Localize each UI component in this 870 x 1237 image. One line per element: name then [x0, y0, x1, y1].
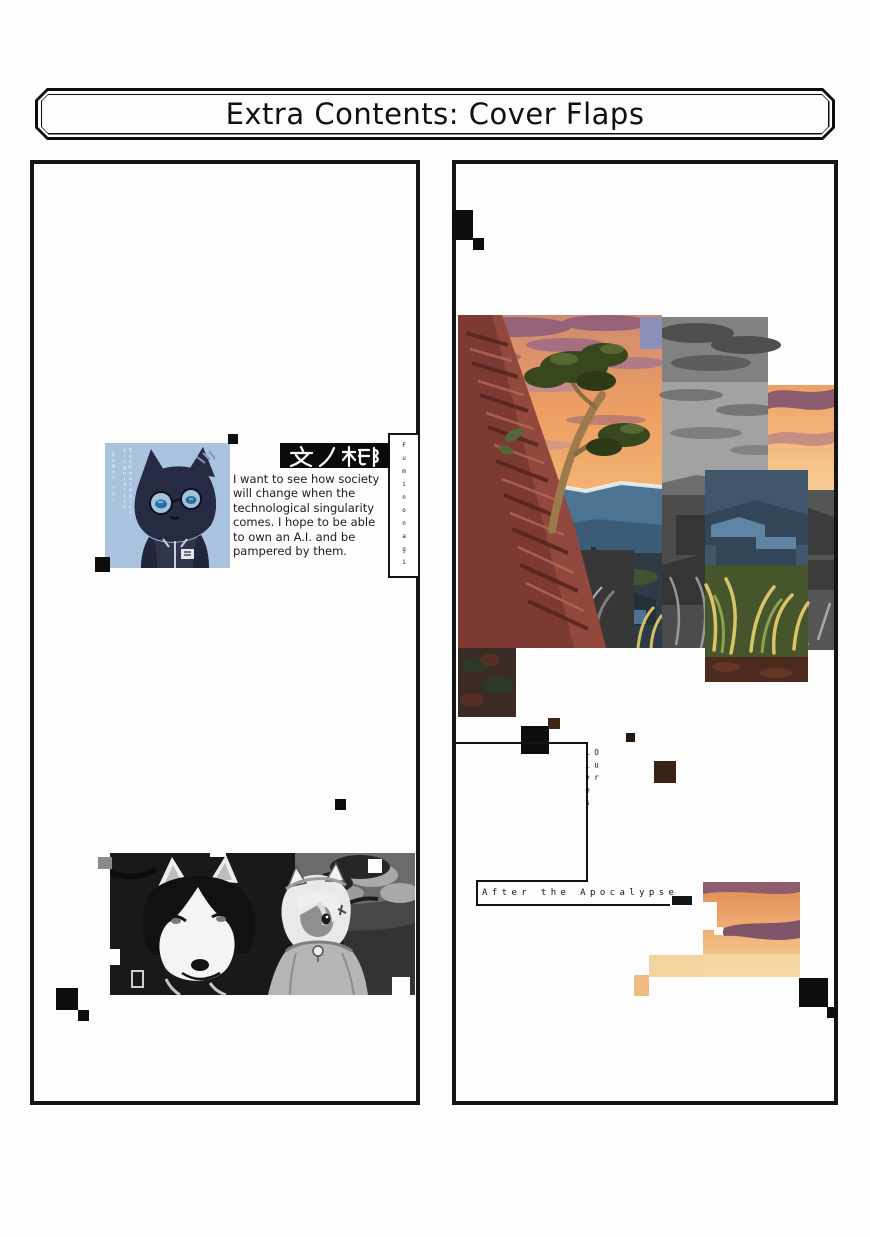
- landscape-artwork: [456, 315, 834, 717]
- portrait-caption-line1: Eager for: [110, 453, 116, 563]
- title-banner: Extra Contents: Cover Flaps: [35, 88, 835, 140]
- pixel-square: [799, 978, 828, 1007]
- pixel-edge-notch: [392, 977, 410, 995]
- right-cover-flap-panel: Our Lives After the Apocalypse: [452, 160, 838, 1105]
- pixel-square: [335, 799, 346, 810]
- author-portrait-image: Eager for Technological Singularity: [105, 443, 230, 568]
- connector-line: [476, 880, 478, 905]
- pixel-square: [521, 726, 549, 754]
- pixel-square: [228, 434, 238, 444]
- pixel-square: [548, 718, 560, 729]
- dog-and-girl-illustration: [110, 853, 415, 995]
- left-cover-flap-panel: Eager for Technological Singularity Fumi…: [30, 160, 420, 1105]
- author-quote: I want to see how society will change wh…: [233, 472, 393, 558]
- pixel-square: [452, 210, 473, 240]
- author-name-bar: 文ノ梛: [280, 443, 390, 468]
- page-title: Extra Contents: Cover Flaps: [226, 97, 645, 131]
- author-name-romaji-vertical: Fuminonagi: [401, 442, 408, 570]
- connector-line: [476, 880, 588, 882]
- sunset-artwork: [634, 882, 804, 996]
- pixel-square: [56, 988, 78, 1010]
- pixel-square: [626, 733, 635, 742]
- connector-line: [456, 742, 587, 744]
- pixel-edge-notch: [110, 949, 120, 965]
- pixel-square: [654, 761, 676, 783]
- author-name-jp-glyphs: [289, 445, 381, 467]
- pixel-square: [78, 1010, 89, 1021]
- pixel-square: [95, 557, 110, 572]
- pixel-edge-notch: [368, 859, 382, 873]
- pixel-square: [473, 238, 484, 250]
- portrait-caption-line2: Technological Singularity: [121, 449, 133, 565]
- series-title-vertical: Our Lives: [587, 748, 601, 860]
- pixel-edge-block: [98, 857, 112, 869]
- pixel-edge-notch: [210, 847, 226, 857]
- pixel-square: [827, 1007, 838, 1018]
